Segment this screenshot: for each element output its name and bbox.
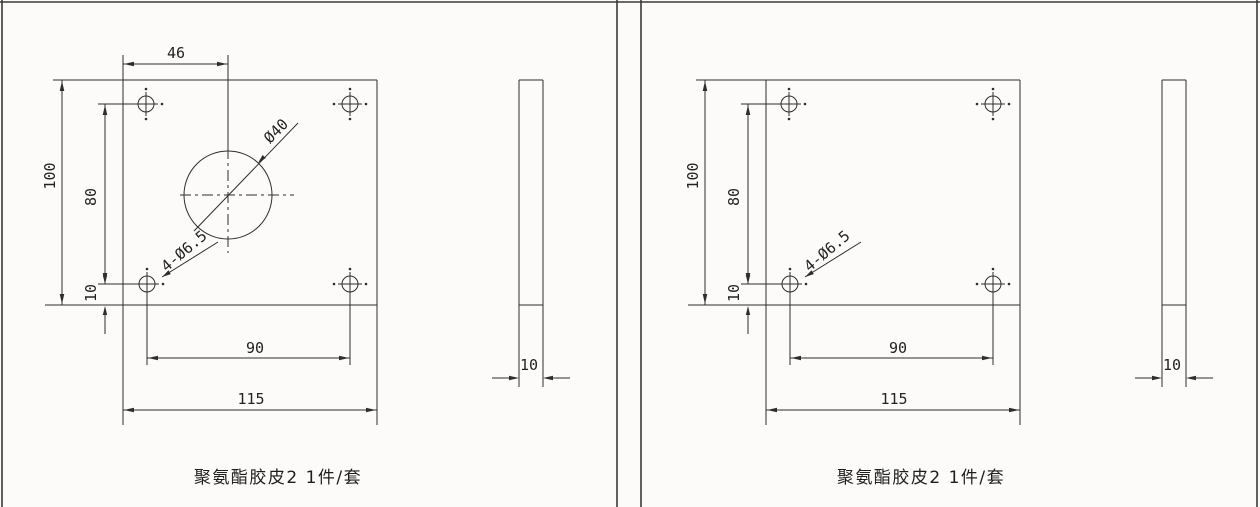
hole-note-label: 4-Ø6.5 bbox=[157, 227, 210, 276]
dim-115-label: 115 bbox=[880, 390, 907, 408]
dim-90-label: 90 bbox=[246, 339, 264, 357]
corner-hole-bottom-left bbox=[98, 268, 164, 365]
dim-80-label: 80 bbox=[725, 188, 743, 206]
drawing-canvas: Ø40 4-Ø6.5 46 100 80 bbox=[0, 0, 1260, 507]
front-view-right bbox=[688, 80, 1020, 425]
bore-diameter-label: Ø40 bbox=[260, 115, 292, 147]
dim-thickness-label: 10 bbox=[520, 356, 538, 374]
dim-100-label: 100 bbox=[684, 162, 702, 189]
dim-115-right bbox=[766, 408, 1020, 413]
dim-46-left bbox=[123, 62, 228, 67]
panel-right: 4-Ø6.5 100 80 10 90 bbox=[684, 80, 1213, 488]
dim-80-label: 80 bbox=[82, 188, 100, 206]
corner-hole-top-right bbox=[333, 88, 368, 121]
dim-115-label: 115 bbox=[237, 390, 264, 408]
dim-90-label: 90 bbox=[889, 339, 907, 357]
dim-10-left bbox=[103, 258, 107, 334]
dim-115-left bbox=[123, 408, 377, 413]
bore-leader-arrow bbox=[258, 155, 266, 163]
dim-10-right bbox=[746, 258, 750, 334]
side-view-left bbox=[492, 80, 570, 387]
dim-10-label: 10 bbox=[725, 284, 743, 302]
center-bore-left bbox=[180, 55, 298, 253]
dim-100-label: 100 bbox=[41, 162, 59, 189]
side-view-right bbox=[1135, 80, 1213, 387]
dim-10-label: 10 bbox=[82, 284, 100, 302]
corner-hole-top-left bbox=[741, 88, 806, 121]
corner-hole-bottom-left bbox=[741, 268, 807, 365]
dim-46-label: 46 bbox=[167, 44, 185, 62]
caption-left: 聚氨酯胶皮2 1件/套 bbox=[194, 468, 362, 488]
corner-hole-bottom-right bbox=[333, 268, 368, 365]
dim-100-left bbox=[60, 80, 65, 305]
dim-80-left bbox=[103, 104, 108, 284]
dim-80-right bbox=[746, 104, 751, 284]
hole-note-label: 4-Ø6.5 bbox=[800, 227, 853, 276]
corner-hole-top-left bbox=[98, 88, 163, 121]
caption-right: 聚氨酯胶皮2 1件/套 bbox=[837, 468, 1005, 488]
corner-hole-top-right bbox=[976, 88, 1011, 121]
corner-hole-bottom-right bbox=[976, 268, 1011, 365]
front-view-left bbox=[45, 55, 377, 425]
dim-100-right bbox=[703, 80, 708, 305]
drawing-sheet: Ø40 4-Ø6.5 46 100 80 bbox=[0, 0, 1260, 507]
panel-left: Ø40 4-Ø6.5 46 100 80 bbox=[41, 44, 570, 488]
dim-thickness-label: 10 bbox=[1163, 356, 1181, 374]
